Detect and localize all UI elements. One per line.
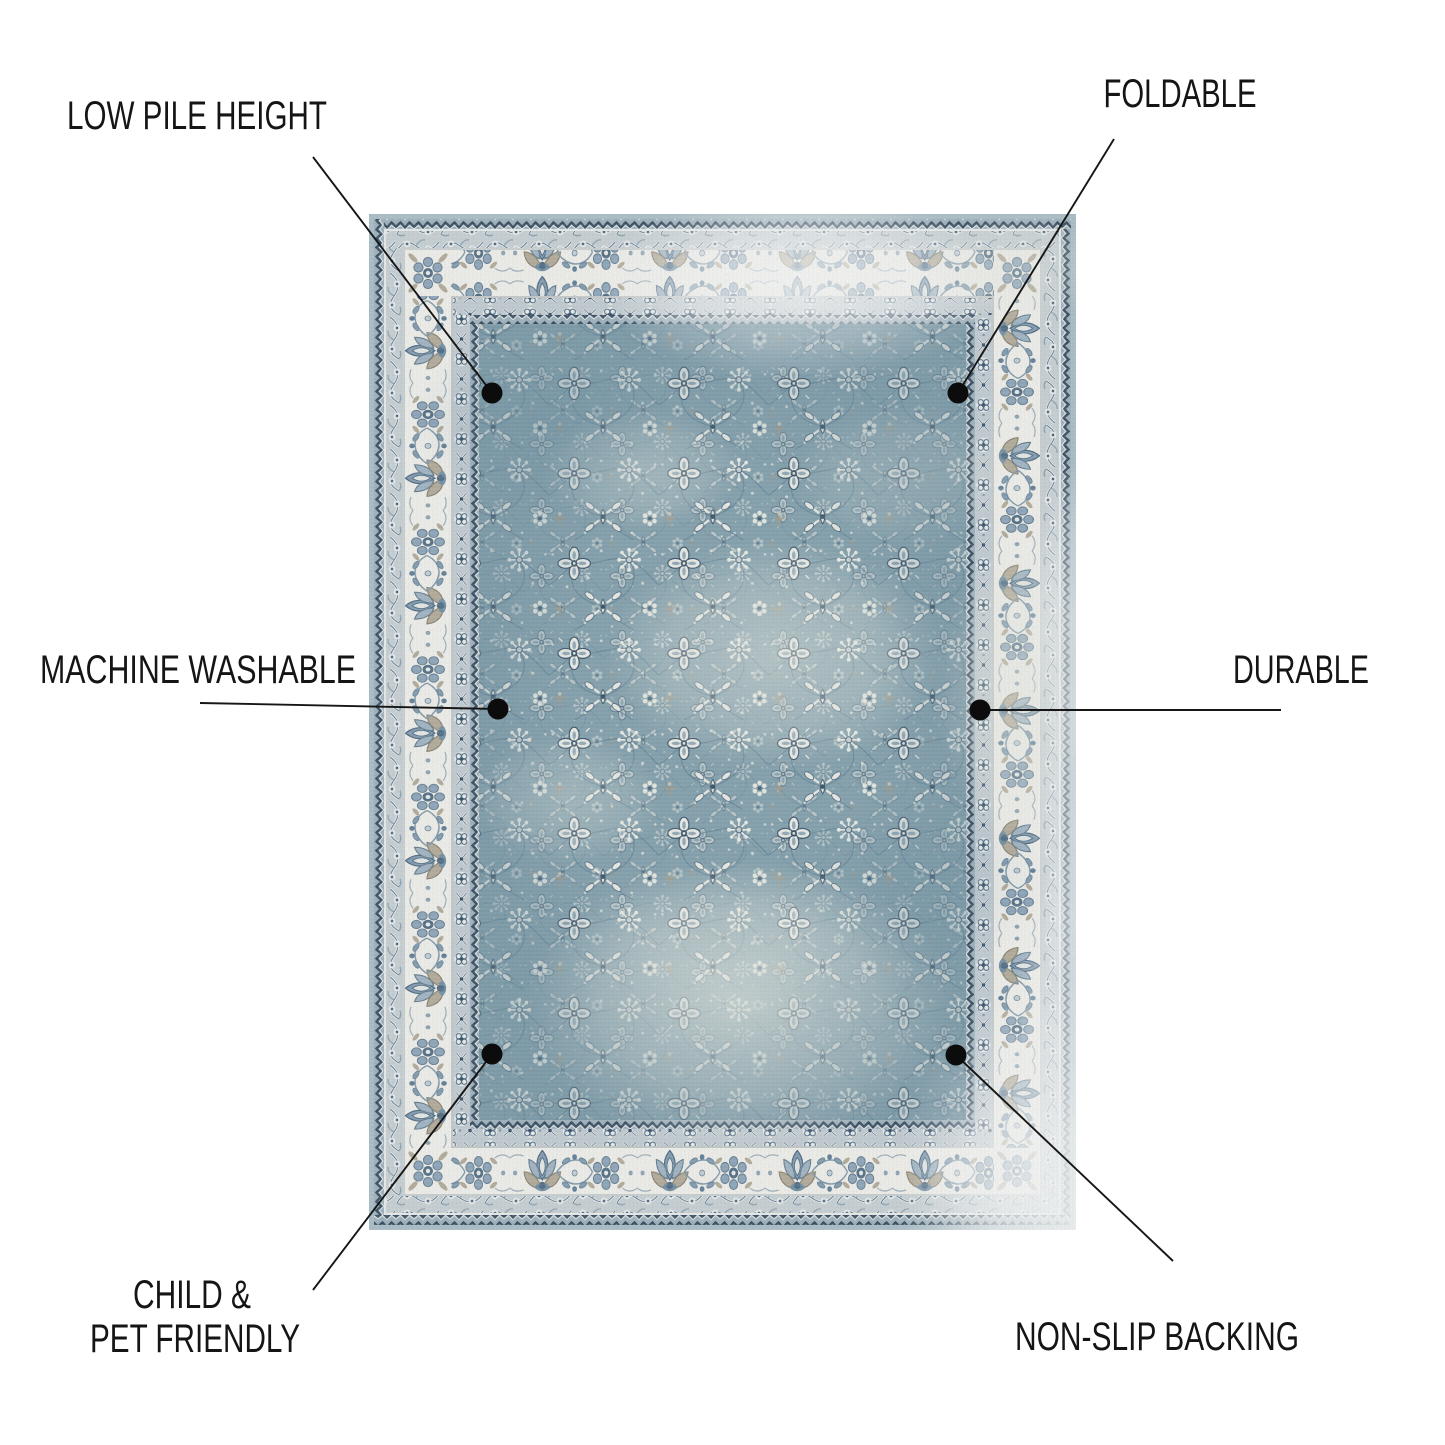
svg-text:DURABLE: DURABLE — [1233, 648, 1369, 692]
svg-text:MACHINE WASHABLE: MACHINE WASHABLE — [40, 648, 356, 692]
svg-text:CHILD &: CHILD & — [133, 1273, 251, 1317]
svg-text:NON-SLIP BACKING: NON-SLIP BACKING — [1015, 1315, 1299, 1359]
svg-text:PET FRIENDLY: PET FRIENDLY — [90, 1317, 300, 1361]
svg-text:LOW PILE HEIGHT: LOW PILE HEIGHT — [67, 94, 327, 138]
svg-text:FOLDABLE: FOLDABLE — [1104, 72, 1257, 116]
